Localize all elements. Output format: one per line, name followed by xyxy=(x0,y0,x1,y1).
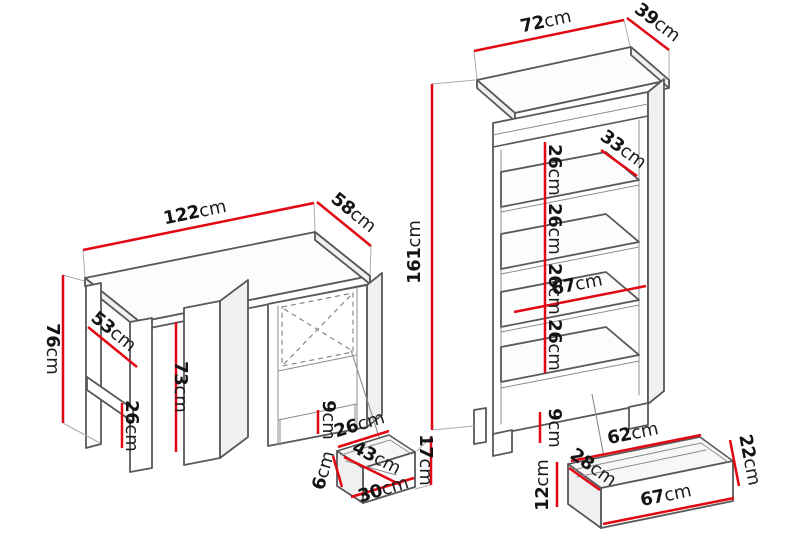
furniture-dimension-diagram: 122cm 58cm 76cm 53cm 73cm 26cm 9cm 26cm … xyxy=(0,0,800,533)
desk-pedestal-side xyxy=(367,273,382,427)
label-desk-rail: 26cm xyxy=(121,400,142,452)
label-bookcase-drawer-front: 12cm xyxy=(532,459,553,511)
label-bookcase-gap1: 26cm xyxy=(544,144,565,196)
bookcase-back-leg xyxy=(474,408,486,444)
bookcase-front-left-leg xyxy=(493,430,512,456)
label-bookcase-plinth: 9cm xyxy=(544,408,565,448)
ext-bookcase-height xyxy=(432,80,475,430)
diagram-svg: 122cm 58cm 76cm 53cm 73cm 26cm 9cm 26cm … xyxy=(0,0,800,533)
label-desk-drawer-side: 6cm xyxy=(308,449,339,493)
bookcase-body-side xyxy=(648,79,664,404)
label-bookcase-gap2: 26cm xyxy=(544,203,565,255)
label-desk-width: 122cm xyxy=(162,196,229,229)
bookcase-illustration xyxy=(474,47,669,457)
label-desk-depth: 58cm xyxy=(327,188,380,237)
label-desk-height: 76cm xyxy=(42,323,63,375)
label-desk-drawer-front: 17cm xyxy=(415,434,436,486)
label-bookcase-gap4: 26cm xyxy=(544,319,565,371)
desk-divider-side xyxy=(220,280,248,458)
label-bookcase-height: 161cm xyxy=(404,220,425,284)
label-desk-clearance: 73cm xyxy=(170,361,191,413)
